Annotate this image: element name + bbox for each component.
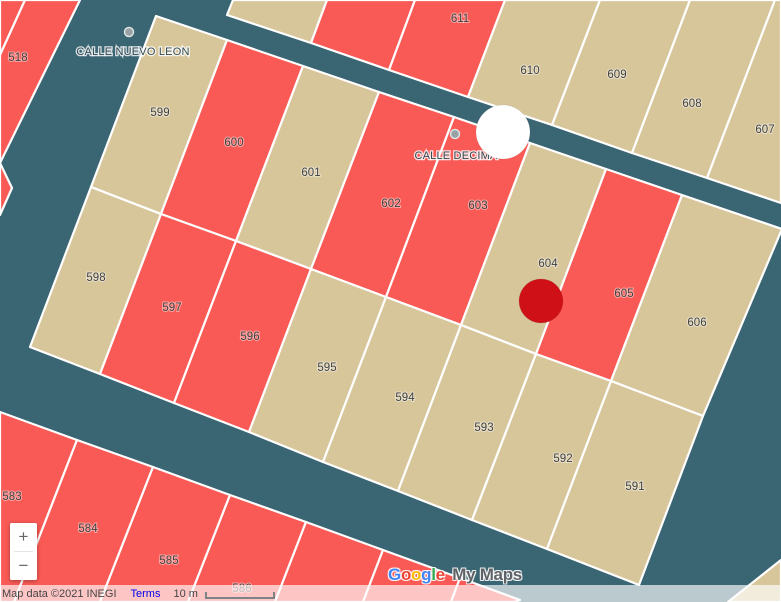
- parcel-label-592: 592: [553, 453, 572, 465]
- parcel-label-596: 596: [240, 331, 259, 343]
- parcel-label-594: 594: [395, 392, 415, 404]
- street-dot-0: [125, 28, 134, 37]
- terms-link[interactable]: Terms: [131, 588, 161, 600]
- parcel-label-585: 585: [159, 555, 178, 567]
- google-my-maps-logo[interactable]: Google My Maps: [388, 565, 522, 585]
- map-canvas[interactable]: CALLE NUEVO LEONCALLE DECIMA518611610609…: [0, 0, 781, 602]
- parcel-left-remnant[interactable]: [0, 163, 12, 215]
- google-logo-letter: G: [388, 565, 401, 584]
- parcel-label-598: 598: [86, 272, 105, 284]
- google-logo-letter: o: [401, 565, 411, 584]
- parcel-label-593: 593: [474, 422, 493, 434]
- scale-label: 10 m: [173, 588, 197, 600]
- parcel-label-606: 606: [687, 317, 706, 329]
- parcel-label-611: 611: [451, 13, 469, 25]
- parcel-label-600: 600: [224, 137, 243, 149]
- parcel-top-a[interactable]: [227, 0, 327, 43]
- zoom-control: + −: [10, 523, 37, 580]
- zoom-out-button[interactable]: −: [10, 552, 37, 580]
- parcel-label-602: 602: [381, 198, 400, 210]
- parcel-label-591: 591: [625, 481, 644, 493]
- parcel-label-605: 605: [614, 288, 633, 300]
- zoom-in-button[interactable]: +: [10, 523, 37, 551]
- street-dot-1: [451, 130, 460, 139]
- google-logo-letter: e: [436, 565, 445, 584]
- google-logo-letter: g: [421, 565, 431, 584]
- parcel-label-607: 607: [755, 124, 774, 136]
- my-maps-text: My Maps: [452, 565, 522, 584]
- parcel-label-597: 597: [162, 302, 181, 314]
- white-circle-marker[interactable]: [476, 105, 530, 159]
- parcel-label-609: 609: [607, 69, 626, 81]
- parcel-label-604: 604: [538, 258, 558, 270]
- scale-bar: [205, 592, 275, 599]
- parcel-label-584: 584: [78, 523, 98, 535]
- map-data-attribution: Map data ©2021 INEGI: [2, 588, 117, 600]
- attribution-bar: Map data ©2021 INEGI Terms 10 m: [0, 585, 781, 602]
- parcel-label-610: 610: [520, 65, 539, 77]
- google-logo-text: Google: [388, 565, 445, 584]
- parcel-label-601: 601: [301, 167, 320, 179]
- parcel-label-595: 595: [317, 362, 336, 374]
- parcel-label-518: 518: [8, 52, 27, 64]
- parcel-label-599: 599: [150, 107, 169, 119]
- map-svg: CALLE NUEVO LEONCALLE DECIMA518611610609…: [0, 0, 781, 602]
- red-circle-marker[interactable]: [519, 279, 563, 323]
- google-logo-letter: o: [411, 565, 421, 584]
- parcel-label-608: 608: [682, 98, 701, 110]
- street-label-0: CALLE NUEVO LEON: [76, 46, 189, 58]
- parcel-label-583: 583: [2, 491, 21, 503]
- parcel-label-603: 603: [468, 200, 487, 212]
